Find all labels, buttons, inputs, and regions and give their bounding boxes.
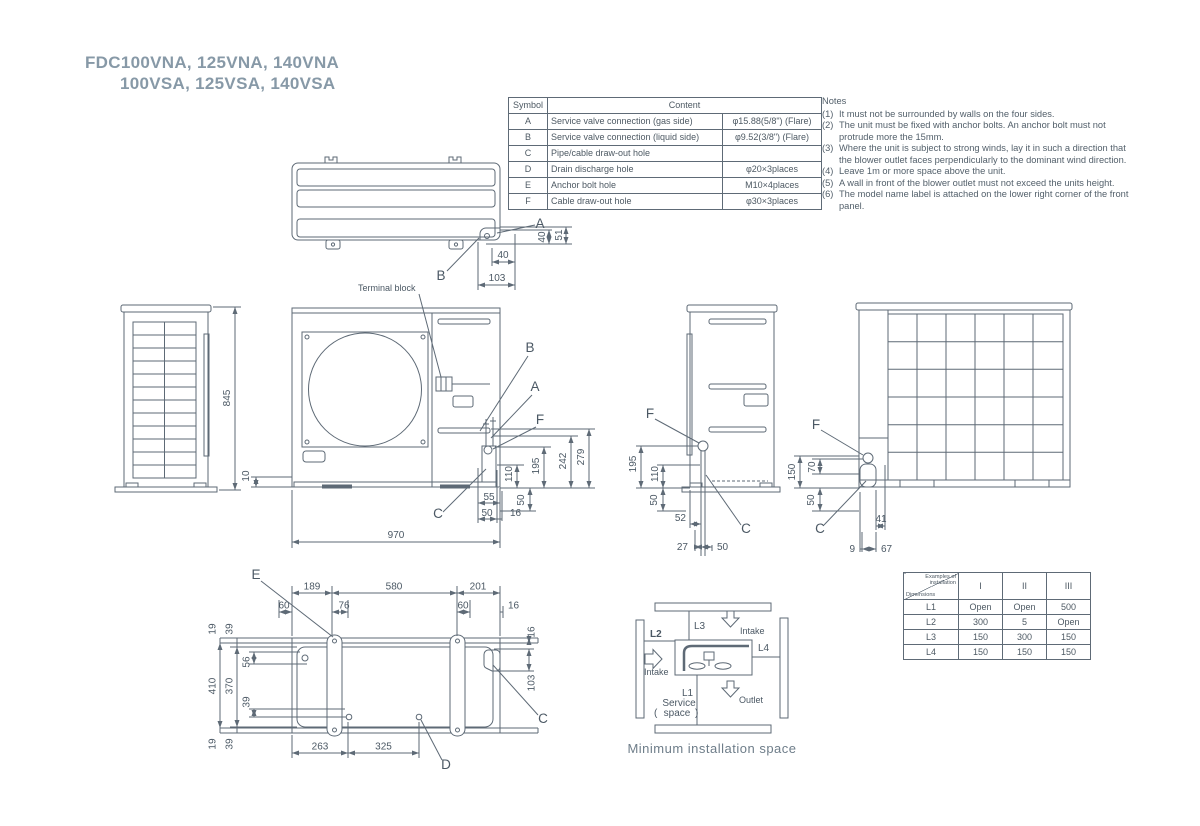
dim-label: 370 xyxy=(225,677,236,694)
dim-label: 242 xyxy=(558,452,569,469)
drawout-hole xyxy=(860,464,876,487)
dim-label: 76 xyxy=(338,601,350,612)
dim-label: 40 xyxy=(537,231,548,243)
dim-label: 50 xyxy=(806,494,817,506)
dim-label: 201 xyxy=(470,582,487,593)
min-space-caption: Minimum installation space xyxy=(627,741,796,756)
dim-label: 50 xyxy=(481,508,493,519)
label-l4: L4 xyxy=(758,643,770,654)
fan-circle xyxy=(309,333,422,446)
dim-label: 16 xyxy=(508,601,520,612)
dim-label: 50 xyxy=(649,494,660,506)
dim-label: 51 xyxy=(554,229,565,241)
terminal-block-label: Terminal block xyxy=(358,283,416,293)
mount-rail xyxy=(327,635,342,736)
drain-hole xyxy=(346,714,352,720)
dim-label: 27 xyxy=(677,542,689,553)
outlet-arrow xyxy=(722,681,739,697)
front-view: B A F C 10 970 110 195 242 279 50 xyxy=(241,308,595,548)
callout-f: F xyxy=(536,412,544,427)
dim-label: 39 xyxy=(242,696,253,708)
drawout-hole xyxy=(484,650,500,671)
top-view: 40 103 40 51 A B xyxy=(292,157,572,290)
fan-blade xyxy=(689,663,705,669)
dim-label: 103 xyxy=(527,674,538,691)
valve-notch xyxy=(480,228,500,240)
min-installation-space: L2 L3 L4 L1 Intake Intake Outlet ( Servi… xyxy=(627,603,796,756)
mount-tab xyxy=(449,157,461,163)
wall-bottom xyxy=(655,725,771,733)
intake-arrow-left xyxy=(645,650,662,669)
right-side-view: F C 195 110 50 52 27 50 xyxy=(628,305,780,556)
callout-b: B xyxy=(525,340,534,355)
service-space-label: space xyxy=(664,708,691,719)
callout-f: F xyxy=(812,417,820,432)
callout-e: E xyxy=(251,567,260,582)
dim-label: 40 xyxy=(497,250,509,261)
dim-label: 19 xyxy=(208,738,219,750)
dim-label: 16 xyxy=(510,508,522,519)
dim-label: 67 xyxy=(881,544,893,555)
dim-label: 52 xyxy=(675,513,687,524)
callout-a: A xyxy=(535,216,544,231)
wall-top xyxy=(655,603,771,611)
drain-hole xyxy=(416,714,422,720)
intake-left-label: Intake xyxy=(644,667,669,677)
terminal-block-annotation: Terminal block xyxy=(358,283,441,377)
fan-grille xyxy=(302,332,428,447)
intake-arrow-top xyxy=(722,611,739,627)
dim-label: 10 xyxy=(241,470,252,482)
service-paren-close: ) xyxy=(695,708,698,719)
mount-tab xyxy=(325,157,337,163)
dim-label: 39 xyxy=(225,623,236,635)
callout-c: C xyxy=(741,521,751,536)
dim-label: 41 xyxy=(875,514,887,525)
left-side-view: 845 xyxy=(115,305,241,492)
terminal-block xyxy=(436,377,452,391)
dim-label: 325 xyxy=(375,742,392,753)
dim-label: 195 xyxy=(628,455,639,472)
dim-label: 56 xyxy=(242,656,253,668)
dim-label: 845 xyxy=(222,389,233,406)
service-paren-open: ( xyxy=(654,708,658,719)
base-plate xyxy=(115,487,217,492)
callout-c: C xyxy=(815,521,825,536)
dim-label: 19 xyxy=(208,623,219,635)
label-l2: L2 xyxy=(650,629,662,640)
dim-label: 580 xyxy=(386,582,403,593)
heat-exchanger xyxy=(684,646,749,671)
dim-label: 9 xyxy=(849,544,855,555)
fan-blade xyxy=(715,663,731,669)
wall-left xyxy=(636,620,644,718)
dim-label: 110 xyxy=(504,466,515,482)
outlet-label: Outlet xyxy=(739,695,764,705)
dim-label: 103 xyxy=(489,273,506,284)
pipes xyxy=(701,451,705,556)
dim-label: 16 xyxy=(527,626,538,638)
wall-right xyxy=(780,618,788,718)
callout-f: F xyxy=(646,406,654,421)
dim-label: 50 xyxy=(516,494,527,506)
bottom-view: 189 580 201 60 76 60 16 19 39 410 370 19… xyxy=(208,567,549,772)
dim-label: 189 xyxy=(304,582,321,593)
callout-c: C xyxy=(433,506,443,521)
dim-label: 50 xyxy=(717,542,729,553)
dim-label: 279 xyxy=(576,448,587,465)
drawing-page: FDC100VNA, 125VNA, 140VNA 100VSA, 125VSA… xyxy=(0,0,1200,826)
callout-b: B xyxy=(436,268,445,283)
dim-label: 410 xyxy=(208,677,219,694)
dim-label: 110 xyxy=(650,466,661,482)
back-view: F C 150 70 50 41 9 67 xyxy=(787,303,1072,555)
intake-top-label: Intake xyxy=(740,626,765,636)
dim-label: 60 xyxy=(457,601,469,612)
dim-label: 263 xyxy=(312,742,329,753)
dim-label: 195 xyxy=(531,457,542,474)
engineering-drawing-svg: 40 103 40 51 A B Terminal block 845 xyxy=(0,0,1200,826)
dim-label: 970 xyxy=(388,530,405,541)
label-l3: L3 xyxy=(694,621,706,632)
callout-d: D xyxy=(441,757,451,772)
mount-rail xyxy=(450,635,465,736)
dim-label: 39 xyxy=(225,738,236,750)
callout-a: A xyxy=(530,379,539,394)
dim-label: 55 xyxy=(483,492,495,503)
callout-c: C xyxy=(538,711,548,726)
dim-label: 70 xyxy=(807,461,818,473)
dim-label: 150 xyxy=(787,463,798,480)
